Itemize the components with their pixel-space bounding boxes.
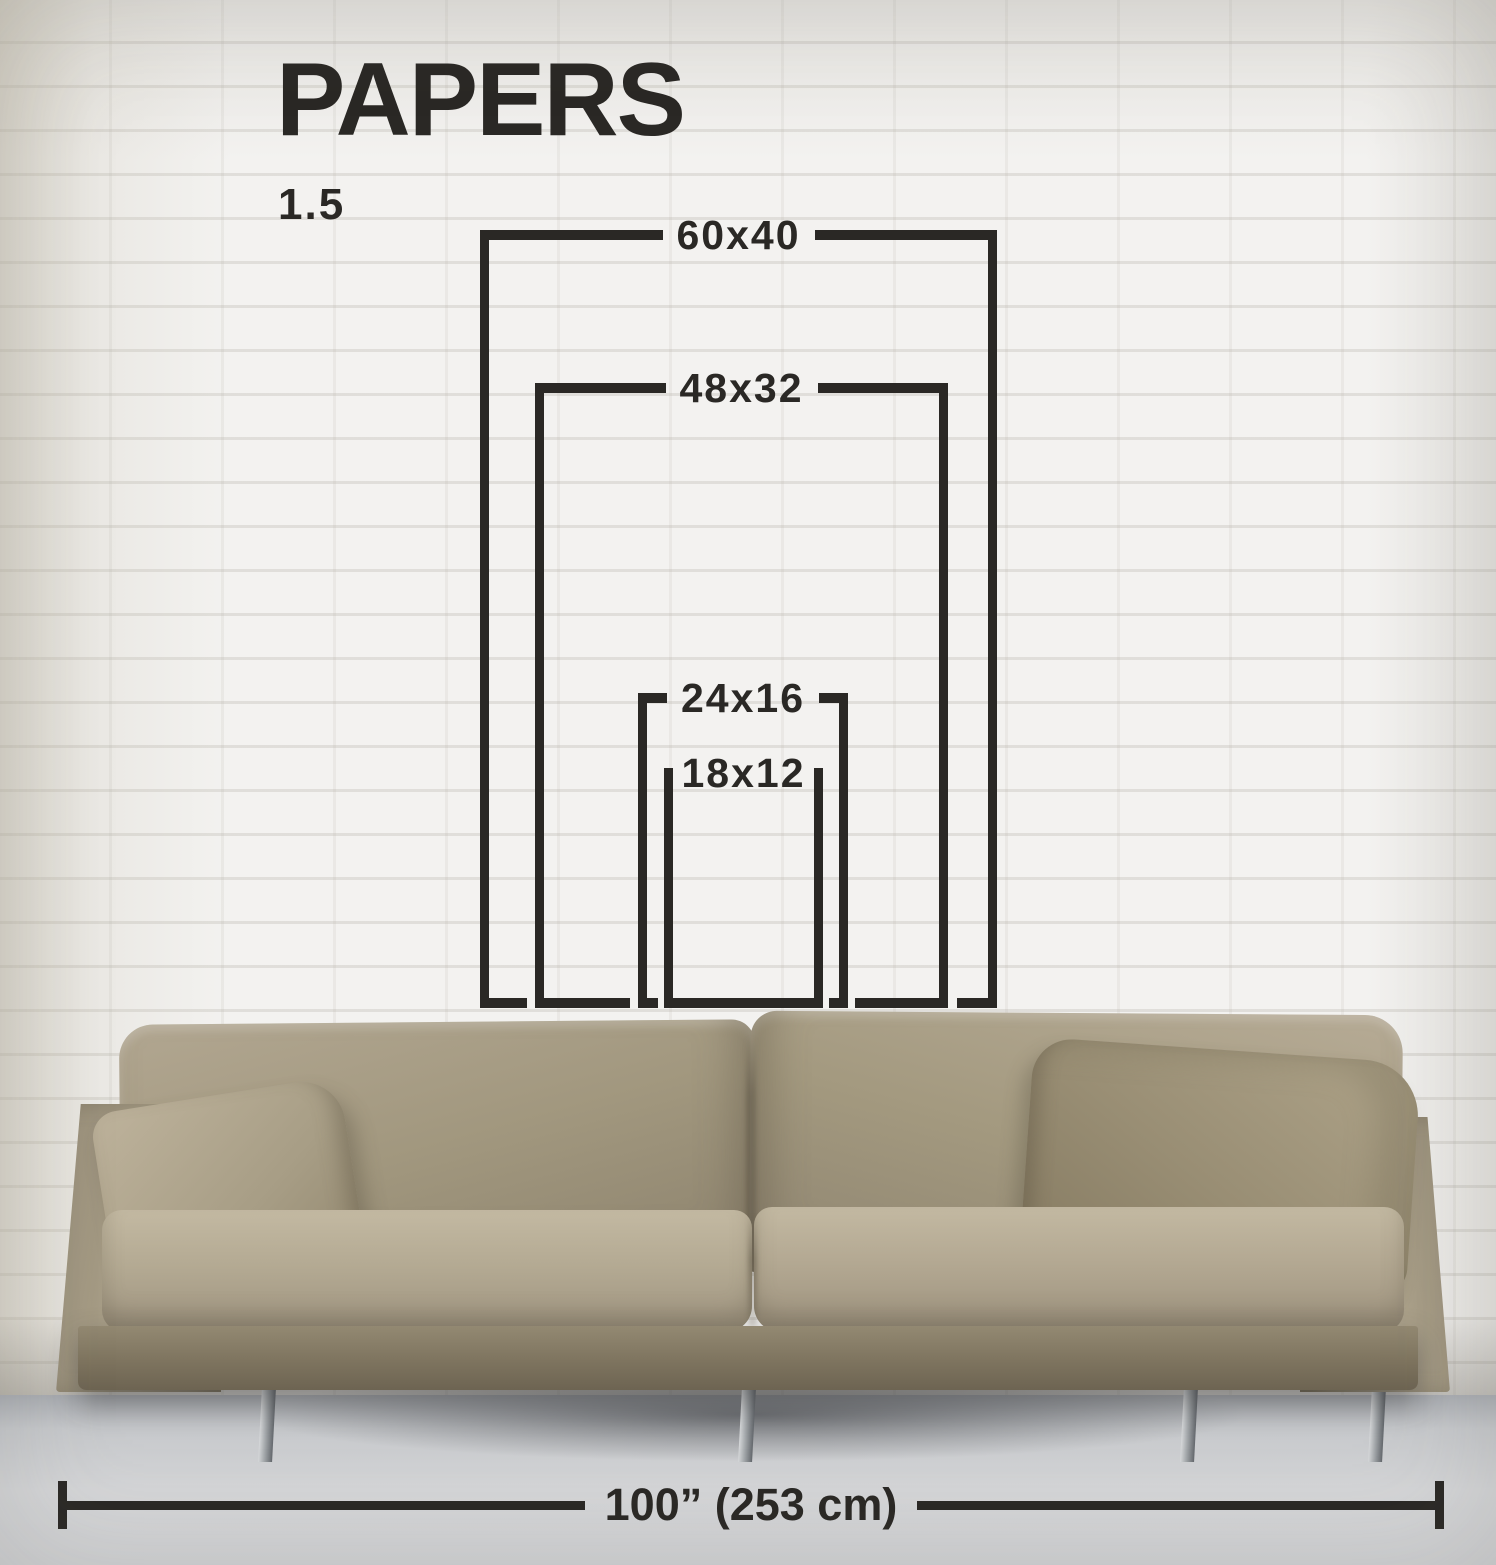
sofa-leg [258,1388,276,1462]
sofa-leg [1368,1388,1386,1462]
dimension-line-right [917,1501,1435,1510]
dimension-line-left [67,1501,585,1510]
sofa-leg [1180,1388,1198,1462]
sofa-seat-seam [748,1216,757,1326]
dimension-tick-right [1435,1481,1444,1529]
floor-width-label: 100” (253 cm) [585,1481,918,1529]
sofa-base-frame [78,1326,1418,1390]
sofa-seat-cushion-left [102,1210,752,1332]
dimension-tick-left [58,1481,67,1529]
sofa-leg [738,1388,756,1462]
print-size-guide: PAPERS 1.5 60x40 48x32 [0,0,1496,1565]
floor-width-dimension: 100” (253 cm) [58,1481,1444,1529]
sofa [48,1008,1448,1463]
page-title: PAPERS [276,48,684,152]
sofa-seat-cushion-right [754,1207,1404,1332]
aspect-ratio-label: 1.5 [278,183,345,227]
